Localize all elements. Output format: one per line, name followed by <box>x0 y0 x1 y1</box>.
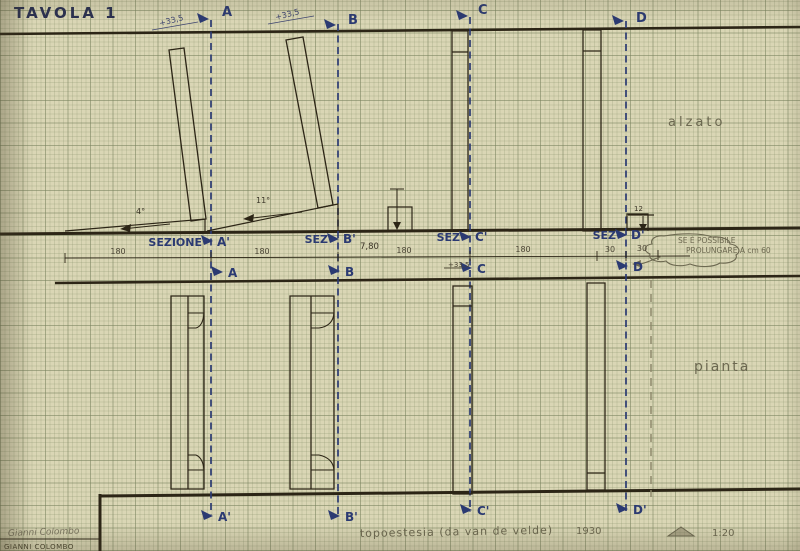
plan-view-label: pianta <box>694 359 750 375</box>
elevation-view-label: alzato <box>668 115 725 130</box>
plan-top-line <box>55 276 800 283</box>
section-marker-flags <box>197 10 628 520</box>
dim-chain-line <box>65 256 690 258</box>
dim-d-seg2: 30 <box>637 244 647 253</box>
panel-a-plan <box>171 296 204 489</box>
elevation-view <box>65 30 654 232</box>
section-label-b-letter: B' <box>343 232 356 246</box>
drawing-sheet: TAVOLA 1 A B C D +33,5 +33,5 SEZIONE A' … <box>0 0 800 551</box>
marker-lower-d-label: D <box>633 260 643 274</box>
ramp-a-arrowhead-icon <box>120 224 131 232</box>
technical-drawing: TAVOLA 1 A B C D +33,5 +33,5 SEZIONE A' … <box>0 0 800 551</box>
marker-bottom-a-label: A' <box>218 510 231 524</box>
marker-lower-c-label: C <box>477 262 486 276</box>
dim-total: 7,80 <box>360 242 379 252</box>
dim-seg1: 180 <box>110 247 125 256</box>
marker-top-a-label: A <box>222 5 232 20</box>
panel-b-bottom-bracket <box>311 455 334 470</box>
marker-lower-b-label: B <box>345 265 354 279</box>
marker-top-c-label: C <box>478 3 488 18</box>
slope-b-label: 11° <box>256 196 270 205</box>
dim-seg3: 180 <box>396 246 411 255</box>
tilted-panel-b <box>286 37 333 208</box>
plan-view <box>171 283 605 494</box>
footer-caption: topoestesia (da van de velde) <box>360 524 553 540</box>
slope-a-label: 4° <box>136 207 145 216</box>
author-name-printed: GIANNI COLOMBO <box>4 543 74 551</box>
marker-top-d-label: D <box>636 11 647 26</box>
footer-scale: 1:20 <box>712 528 734 539</box>
dimension-line <box>65 250 690 268</box>
dim-c-offset: +33,5 <box>448 261 469 269</box>
dim-seg2: 180 <box>254 247 269 256</box>
section-lines <box>211 17 626 515</box>
author-signature: Gianni Colombo <box>8 526 80 539</box>
footer-year: 1930 <box>576 526 601 537</box>
marker-bottom-d-label: D' <box>633 503 647 517</box>
column-d-elevation <box>583 30 601 231</box>
section-label-c-letter: C' <box>475 230 487 244</box>
section-label-a-prefix: SEZIONE <box>148 236 202 249</box>
floor-box-arrowhead-icon <box>393 222 401 230</box>
plan-bottom-line <box>100 489 800 496</box>
column-d-plan <box>587 283 605 490</box>
panel-b-top-bracket <box>311 313 334 328</box>
heavy-lines <box>0 27 800 551</box>
scale-triangle-icon <box>668 527 694 536</box>
marker-top-c-icon <box>456 10 468 20</box>
marker-bottom-b-label: B' <box>345 510 358 524</box>
section-label-d-letter: D' <box>631 228 645 242</box>
ramp-b <box>207 204 338 231</box>
floor-box <box>388 207 412 231</box>
section-label-b-prefix: SEZ <box>305 233 328 246</box>
sheet-title: TAVOLA 1 <box>14 4 119 22</box>
level-a-label: +33,5 <box>158 13 184 28</box>
panel-a-top-bracket <box>188 313 204 328</box>
dim-step: 12 <box>634 205 643 213</box>
ramp-a <box>65 219 205 231</box>
marker-top-a-icon <box>197 13 209 23</box>
marker-top-b-label: B <box>348 13 358 28</box>
tilted-panel-a <box>169 48 206 221</box>
section-label-d-prefix: SEZ <box>593 229 616 242</box>
dim-d-seg1: 30 <box>605 245 615 254</box>
column-c-elevation <box>452 31 468 231</box>
marker-top-d-icon <box>612 15 624 25</box>
marker-top-b-icon <box>324 19 336 29</box>
top-datum-line <box>0 27 800 34</box>
marker-bottom-c-label: C' <box>477 504 489 518</box>
level-b-label: +33,5 <box>274 7 300 22</box>
marker-lower-a-icon <box>211 266 223 276</box>
dim-seg4: 180 <box>515 245 530 254</box>
ramp-b-arrowhead-icon <box>243 214 254 222</box>
marker-lower-a-label: A <box>228 266 238 280</box>
section-label-c-prefix: SEZ <box>437 231 460 244</box>
note-line2: PROLUNGARE A cm 60 <box>686 246 771 255</box>
panel-a-bottom-bracket <box>188 455 204 470</box>
note-line1: SE È POSSIBILE <box>678 236 736 245</box>
section-label-a-letter: A' <box>217 235 230 249</box>
